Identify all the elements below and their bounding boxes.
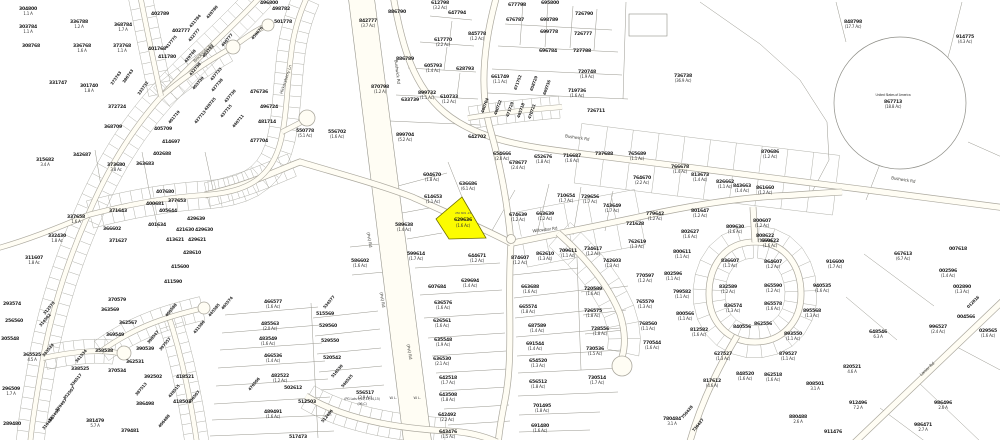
parcel-id[interactable]: 308768 [22,43,40,49]
parcel-label[interactable]: 429639 [187,216,205,222]
parcel-label[interactable]: 654666(2.0 Ac) [493,151,511,161]
parcel-id[interactable]: 289480 [3,421,21,427]
parcel-label[interactable]: 402688 [153,151,171,157]
parcel-area: (4.6 A) [706,383,719,388]
parcel-label[interactable]: 498782 [272,6,290,12]
parcel-label[interactable]: 605793(1.4 Ac) [424,63,442,73]
parcel-id[interactable]: 007618 [949,246,967,252]
parcel-label[interactable]: 832589(1.2 Ac) [719,284,737,294]
parcel-label[interactable]: 836607(1.1 Ac) [721,258,739,268]
parcel-label[interactable]: 610733(1.2 Ac) [440,94,458,104]
parcel-label[interactable]: 405644 [159,208,177,214]
cul-de-sac [262,19,274,31]
parcel-label[interactable]: 874607(1.2 Ac) [511,255,529,265]
parcel-label[interactable]: 809630(1.6 Ac) [726,224,744,234]
parcel-label[interactable]: 736738(36.9 Ac) [674,73,692,83]
parcel-id[interactable]: 517473 [289,434,307,440]
parcel-label[interactable]: 765579(1.3 Ac) [636,299,654,309]
parcel-id[interactable]: 386498 [136,401,154,407]
parcel-label[interactable]: 358538 [95,348,113,354]
parcel-label[interactable]: 779642(1.2 Ac) [646,211,664,221]
parcel-area: (1.5 Ac) [441,434,456,439]
parcel-id[interactable]: 363683 [136,161,154,167]
parcel-label[interactable]: 489491(1.6 Ac) [264,409,282,419]
parcel-label[interactable]: 428610 [183,250,201,256]
parcel-id[interactable]: 342687 [73,152,91,158]
parcel-id[interactable]: 726777 [574,31,592,37]
parcel-label[interactable]: 629694(1.4 Ac) [461,278,479,288]
parcel-area: (2.0 Ac) [263,326,278,331]
parcel-label[interactable]: 401634 [148,222,166,228]
parcel-label[interactable]: 636530(2.1 Ac) [433,356,451,366]
parcel-label[interactable]: 363683 [136,161,154,167]
parcel-label[interactable]: 496800 [260,0,278,6]
parcel-label[interactable]: 698789 [540,17,558,23]
parcel-label[interactable]: 940535(1.6 Ac) [813,283,831,293]
parcel-area: (1.8 Ac) [425,177,440,182]
parcel-id[interactable]: 402688 [153,151,171,157]
parcel-label[interactable]: 861660(1.2 Ac) [756,185,774,195]
parcel-label[interactable]: 402777 [172,28,190,34]
parcel-id[interactable]: 529560 [319,323,337,329]
parcel-label[interactable]: 604670(1.8 Ac) [423,172,441,182]
parcel-label[interactable]: 429621 [188,237,206,243]
parcel-area: (1.6 Ac) [570,93,585,98]
parcel-id[interactable]: 428610 [183,250,201,256]
parcel-label[interactable]: 661749(1.1 Ac) [491,74,509,84]
parcel-id[interactable]: 370534 [108,368,126,374]
parcel-label[interactable]: 895568(1.3 Ac) [803,308,821,318]
parcel-label[interactable]: 843663(1.4 Ac) [733,183,751,193]
parcel-label[interactable]: 512503 [298,399,316,405]
parcel-label[interactable]: 879527(1.1 Ac) [779,351,797,361]
parcel-label[interactable]: 667613(6.7 Ac) [894,251,912,261]
parcel-id[interactable]: 369549 [106,332,124,338]
parcel-label[interactable]: 418503 [173,399,191,405]
parcel-label[interactable]: 813673(1.4 Ac) [691,172,709,182]
parcel-label[interactable]: 496724 [260,104,278,110]
parcel-label[interactable]: 719736(1.6 Ac) [568,88,586,98]
parcel-label[interactable]: 709611(1.1 Ac) [559,248,577,258]
parcel-id[interactable]: 004566 [957,314,975,320]
parcel-id[interactable]: 392502 [144,374,162,380]
parcel-id[interactable]: 405644 [159,208,177,214]
parcel-label[interactable]: 770597(1.2 Ac) [636,273,654,283]
parcel-label[interactable]: 710654(1.7 Ac) [557,193,575,203]
parcel-label[interactable]: 676787 [506,17,524,23]
parcel-label[interactable]: 865590(1.2 Ac) [764,283,782,293]
parcel-label[interactable]: 643476(1.5 Ac) [439,429,457,439]
parcel-id[interactable]: 727788 [573,48,591,54]
parcel-id[interactable]: 501778 [274,19,292,25]
parcel-label[interactable]: 466577(1.6 Ac) [264,299,282,309]
parcel-label[interactable]: 466536(1.4 Ac) [264,353,282,363]
parcel-label[interactable]: 665574(1.8 Ac) [519,304,537,314]
parcel-label[interactable]: 770544(1.6 Ac) [643,340,661,350]
parcel-label[interactable]: 501778 [274,19,292,25]
parcel-id[interactable]: 414697 [162,139,180,145]
parcel-label[interactable]: 726790 [575,11,593,17]
parcel-id[interactable]: 726711 [587,108,605,114]
parcel-label[interactable]: 421630 [176,227,194,233]
parcel-label[interactable]: 737688 [595,151,613,157]
parcel-label[interactable]: 743649(1.7 Ac) [603,203,621,213]
parcel-label[interactable]: 485563(2.0 Ac) [261,321,279,331]
parcel-label[interactable]: 695800 [541,0,559,6]
parcel-label[interactable]: 914775(4.3 Ac) [956,34,974,44]
parcel-label[interactable]: 400681 [146,201,164,207]
parcel-area: (1.7 Ac) [441,380,456,385]
parcel-id[interactable]: 911476 [824,429,842,435]
parcel-label[interactable]: 730536(1.5 Ac) [586,346,604,356]
parcel-id[interactable]: 418503 [173,399,191,405]
parcel-area: (1.8 Ac) [593,331,608,336]
parcel-area: 2.6 A [793,419,803,424]
parcel-label[interactable]: 377653 [168,198,186,204]
parcel-label[interactable]: 726575(1.8 Ac) [584,308,602,318]
parcel-label[interactable]: 643508(1.8 Ac) [439,392,457,402]
parcel-id[interactable]: 502612 [284,385,302,391]
parcel-label[interactable]: 654520(1.3 Ac) [529,358,547,368]
parcel-label[interactable]: 586602(1.6 Ac) [351,258,369,268]
parcel-label[interactable]: 405709 [154,126,172,132]
parcel-map-canvas[interactable]: United States of America867713(18.8 Ac)2… [0,0,1000,440]
parcel-label[interactable]: 293574 [3,301,21,307]
parcel-id[interactable]: 415600 [171,264,189,270]
parcel-id[interactable]: 633739 [401,97,419,103]
parcel-id[interactable]: 721628 [626,221,644,227]
parcel-id[interactable]: 390539 [136,346,154,352]
parcel-label[interactable]: 529550 [321,338,339,344]
parcel-id[interactable]: 377653 [168,198,186,204]
parcel-id[interactable]: 862556 [754,321,772,327]
parcel-id[interactable]: 481714 [258,119,276,125]
parcel-area: (1.1 Ac) [493,79,508,84]
parcel-label[interactable]: 893550(1.1 Ac) [784,331,802,341]
parcel-label[interactable]: 764670(2.2 Ac) [633,175,651,185]
parcel-label[interactable]: 836574(1.3 Ac) [724,303,742,313]
parcel-label[interactable]: 800566(1.1 Ac) [676,311,694,321]
map-annotation: W. L. [413,396,420,400]
parcel-label[interactable]: 728556(1.8 Ac) [591,326,609,336]
parcel-label[interactable]: 911476 [824,429,842,435]
parcel-id[interactable]: 338525 [71,366,89,372]
parcel-id[interactable]: 379481 [121,428,139,434]
parcel-id[interactable]: 512503 [298,399,316,405]
parcel-id[interactable]: 642702 [468,134,486,140]
parcel-id[interactable]: 413621 [166,237,184,243]
parcel-label[interactable]: 633739 [401,97,419,103]
parcel-id[interactable]: 362531 [126,359,144,365]
parcel-id[interactable]: 476736 [250,89,268,95]
parcel-id[interactable]: 429639 [187,216,205,222]
parcel-label[interactable]: 766678(1.4 Ac) [671,164,689,174]
parcel-area: (2.1 Ac) [435,361,450,366]
parcel-label[interactable]: 720748(1.9 Ac) [578,69,596,79]
parcel-label[interactable]: 674639(1.2 Ac) [509,212,527,222]
map-viewport[interactable]: United States of America867713(18.8 Ac)2… [0,0,1000,440]
parcel-label[interactable]: 916600(1.7 Ac) [826,259,844,269]
parcel-id[interactable]: 366602 [103,226,121,232]
parcel-id[interactable]: 400681 [146,201,164,207]
parcel-label[interactable]: 800607(1.2 Ac) [753,218,771,228]
parcel-id[interactable]: 421630 [176,227,194,233]
parcel-label[interactable]: 864607(1.2 Ac) [764,259,782,269]
parcel-label[interactable]: 515569 [316,311,334,317]
parcel-label[interactable]: 636576(1.6 Ac) [434,300,452,310]
parcel-id[interactable]: 293574 [3,301,21,307]
parcel-label[interactable]: 636686(6.1 Ac) [459,181,477,191]
parcel-area: (1.3 Ac) [630,244,645,249]
parcel-label[interactable]: 370534 [108,368,126,374]
parcel-id[interactable]: 886790 [388,9,406,15]
parcel-label[interactable]: 678677(2.4 Ac) [509,160,527,170]
parcel-label[interactable]: 371627 [109,238,127,244]
parcel-label[interactable]: 696784 [539,48,557,54]
parcel-label[interactable]: 765689(1.1 Ac) [628,151,646,161]
parcel-id[interactable]: 498782 [272,6,290,12]
parcel-label[interactable]: 663688(1.6 Ac) [521,284,539,294]
parcel-label[interactable]: 372724 [108,104,126,110]
parcel-label[interactable]: 642492(2.2 Ac) [438,412,456,422]
parcel-label[interactable]: 418521 [176,374,194,380]
parcel-label[interactable]: 379481 [121,428,139,434]
parcel-label[interactable]: 589638(1.4 Ac) [395,222,413,232]
parcel-label[interactable]: 701495(1.8 Ac) [533,403,551,413]
parcel-label[interactable]: 862518(1.6 Ac) [764,372,782,382]
parcel-id[interactable]: 726790 [575,11,593,17]
parcel-label[interactable]: 726777 [574,31,592,37]
parcel-label[interactable]: 642518(1.7 Ac) [439,375,457,385]
parcel-label[interactable]: 002596(1.4 Ac) [939,268,957,278]
parcel-id[interactable]: 698789 [540,17,558,23]
parcel-label[interactable]: 727788 [573,48,591,54]
parcel-label[interactable]: 802596(1.1 Ac) [664,271,682,281]
parcel-label[interactable]: 411780 [158,54,176,60]
parcel-id[interactable]: 411780 [158,54,176,60]
parcel-label[interactable]: 407680 [156,189,174,195]
parcel-label[interactable]: 862610(1.3 Ac) [536,251,554,261]
parcel-label[interactable]: 663639(1.2 Ac) [536,211,554,221]
parcel-label[interactable]: 401768 [148,46,166,52]
parcel-id[interactable]: 840556 [733,324,751,330]
parcel-label[interactable]: 029565(1.6 Ac) [979,328,997,338]
parcel-label[interactable]: 614653(1.1 Ac) [424,194,442,204]
parcel-label[interactable]: 007618 [949,246,967,252]
parcel-label[interactable]: 626561(1.6 Ac) [433,318,451,328]
parcel-label[interactable]: 550778(5.1 Ac) [296,128,314,138]
parcel-label[interactable]: 517473 [289,434,307,440]
parcel-label[interactable]: 687589(1.4 Ac) [528,323,546,333]
parcel-area: 3.1 A [810,386,820,391]
parcel-id[interactable]: 402777 [172,28,190,34]
parcel-id[interactable]: 496724 [260,104,278,110]
parcel-label[interactable]: 004566 [957,314,975,320]
parcel-id[interactable]: 677798 [508,2,526,8]
parcel-id[interactable]: 496800 [260,0,278,6]
parcel-label[interactable]: 691544(1.4 Ac) [526,341,544,351]
parcel-label[interactable]: 768560(1.1 Ac) [639,321,657,331]
parcel-id[interactable]: 370579 [108,297,126,303]
parcel-id[interactable]: 407680 [156,189,174,195]
parcel-id[interactable]: 515569 [316,311,334,317]
parcel-label[interactable]: 801647(1.2 Ac) [691,208,709,218]
parcel-label[interactable]: 599614(1.7 Ac) [407,251,425,261]
parcel-label[interactable]: 848798(17.7 Ac) [844,19,862,29]
parcel-id[interactable]: 418521 [176,374,194,380]
parcel-label[interactable]: 392502 [144,374,162,380]
parcel-label[interactable]: 331747 [49,80,67,86]
parcel-id[interactable]: 520542 [323,355,341,361]
parcel-label[interactable]: 612798(3.2 Ac) [431,0,449,10]
parcel-label[interactable]: 802627(1.6 Ac) [681,229,699,239]
parcel-label[interactable]: 734617(1.2 Ac) [584,246,602,256]
parcel-label[interactable]: 369549 [106,332,124,338]
parcel-label[interactable]: 642702 [468,134,486,140]
parcel-label[interactable]: 762619(1.3 Ac) [628,239,646,249]
parcel-label[interactable]: 716687(1.6 Ac) [563,153,581,163]
parcel-label[interactable]: 607684 [428,284,446,290]
parcel-label[interactable]: 899732(1.1 Ac) [418,90,436,100]
parcel-area: (1.6 Ac) [738,376,753,381]
parcel-area: 2.7 A [918,427,928,432]
parcel-id[interactable]: 628793 [456,66,474,72]
parcel-label[interactable]: 691480(1.6 Ac) [531,423,549,433]
parcel-label[interactable]: 862556 [754,321,772,327]
parcel-label[interactable]: 628793 [456,66,474,72]
parcel-label[interactable]: 826662(1.1 Ac) [716,179,734,189]
parcel-id[interactable]: 529550 [321,338,339,344]
parcel-label[interactable]: 644671(1.2 Ac) [468,253,486,263]
parcel-label[interactable]: 556702(1.6 Ac) [328,129,346,139]
parcel-label[interactable]: 256560 [5,318,23,324]
parcel-label[interactable]: 370579 [108,297,126,303]
parcel-area: 1.7 A [6,391,16,396]
parcel-area: (1.8 Ac) [535,408,550,413]
parcel-label[interactable]: 812582(1.6 Ac) [690,327,708,337]
parcel-label[interactable]: 899704(5.2 Ac) [396,132,414,142]
parcel-label[interactable]: 647794 [448,10,466,16]
parcel-label[interactable]: 721628 [626,221,644,227]
parcel-id[interactable]: 305548 [1,336,19,342]
parcel-id[interactable]: 411590 [164,279,182,285]
parcel-label[interactable]: 729656(1.7 Ac) [581,194,599,204]
parcel-id[interactable]: 429630 [195,227,213,233]
parcel-label[interactable]: 390539 [136,346,154,352]
parcel-label[interactable]: 477704 [250,138,268,144]
parcel-label[interactable]: 429630 [195,227,213,233]
parcel-label[interactable]: 996527(2.4 Ac) [929,324,947,334]
parcel-area: (1.2 Ac) [766,288,781,293]
parcel-label[interactable]: 411590 [164,279,182,285]
parcel-label[interactable]: 886790 [388,9,406,15]
parcel-label[interactable]: 617770(2.2 Ac) [434,37,452,47]
parcel-label[interactable]: 415600 [171,264,189,270]
parcel-label[interactable]: 635548(1.9 Ac) [434,337,452,347]
parcel-label[interactable]: 652676(1.8 Ac) [534,154,552,164]
parcel-label[interactable]: 338525 [71,366,89,372]
parcel-id[interactable]: 405709 [154,126,172,132]
parcel-label[interactable]: 362567 [119,320,137,326]
parcel-id[interactable]: 402789 [151,11,169,17]
parcel-label[interactable]: 289480 [3,421,21,427]
parcel-id[interactable]: 401634 [148,222,166,228]
parcel-label[interactable]: 800611(1.1 Ac) [673,249,691,259]
parcel-label[interactable]: 305548 [1,336,19,342]
parcel-label[interactable]: 371643 [109,208,127,214]
parcel-label[interactable]: 002890(1.3 Ac) [953,284,971,294]
parcel-id[interactable]: 737688 [595,151,613,157]
parcel-area: (1.9 Ac) [436,342,451,347]
parcel-id[interactable]: 699778 [540,29,558,35]
parcel-id[interactable]: 256560 [5,318,23,324]
parcel-label[interactable]: 402789 [151,11,169,17]
parcel-label[interactable]: 362531 [126,359,144,365]
parcel-label[interactable]: 483549(1.6 Ac) [259,336,277,346]
parcel-label[interactable]: 720589(1.6 Ac) [584,286,602,296]
parcel-id[interactable]: 368709 [104,124,122,130]
parcel-label[interactable]: 476736 [250,89,268,95]
parcel-label[interactable]: 529560 [319,323,337,329]
parcel-area: (1.2 Ac) [693,213,708,218]
parcel-id[interactable]: 331747 [49,80,67,86]
parcel-id[interactable]: 607684 [428,284,446,290]
parcel-label[interactable]: 413621 [166,237,184,243]
parcel-label[interactable]: 386498 [136,401,154,407]
parcel-area: 1.1 A [23,11,33,16]
parcel-label[interactable]: 414697 [162,139,180,145]
parcel-label[interactable]: 502612 [284,385,302,391]
parcel-label[interactable]: 677798 [508,2,526,8]
parcel-label[interactable]: 845778(1.2 Ac) [468,31,486,41]
parcel-label[interactable]: 660622(1.6 Ac) [761,238,779,248]
parcel-id[interactable]: 401768 [148,46,166,52]
parcel-label[interactable]: 482522(1.2 Ac) [271,373,289,383]
parcel-label[interactable]: 520542 [323,355,341,361]
parcel-id[interactable]: 695800 [541,0,559,6]
parcel-id[interactable]: 358538 [95,348,113,354]
parcel-id[interactable]: 362567 [119,320,137,326]
parcel-label[interactable]: 363569 [101,307,119,313]
parcel-label[interactable]: 308768 [22,43,40,49]
parcel-id[interactable]: 696784 [539,48,557,54]
parcel-label[interactable]: 865578(1.6 Ac) [764,301,782,311]
parcel-id[interactable]: 647794 [448,10,466,16]
parcel-id[interactable]: 363569 [101,307,119,313]
parcel-id[interactable]: 371627 [109,238,127,244]
parcel-label[interactable]: 699778 [540,29,558,35]
parcel-id[interactable]: 372724 [108,104,126,110]
parcel-id[interactable]: 429621 [188,237,206,243]
parcel-label[interactable]: 842777(3.7 Ac) [359,18,377,28]
parcel-label[interactable]: 627527(1.3 Ac) [714,351,732,361]
parcel-label[interactable]: 730514(1.7 Ac) [588,375,606,385]
parcel-label[interactable]: 342687 [73,152,91,158]
parcel-id[interactable]: 477704 [250,138,268,144]
parcel-label[interactable]: 742603(1.3 Ac) [603,258,621,268]
parcel-id[interactable]: 676787 [506,17,524,23]
parcel-label[interactable]: 848520(1.6 Ac) [736,371,754,381]
parcel-label[interactable]: 870686(1.2 Ac) [761,149,779,159]
parcel-id[interactable]: 371643 [109,208,127,214]
parcel-label[interactable]: 481714 [258,119,276,125]
parcel-label[interactable]: 840556 [733,324,751,330]
parcel-label[interactable]: 799582(1.1 Ac) [673,289,691,299]
parcel-label[interactable]: 368709 [104,124,122,130]
parcel-label[interactable]: 366602 [103,226,121,232]
parcel-label[interactable]: 656512(1.8 Ac) [529,379,547,389]
parcel-label[interactable]: 726711 [587,108,605,114]
